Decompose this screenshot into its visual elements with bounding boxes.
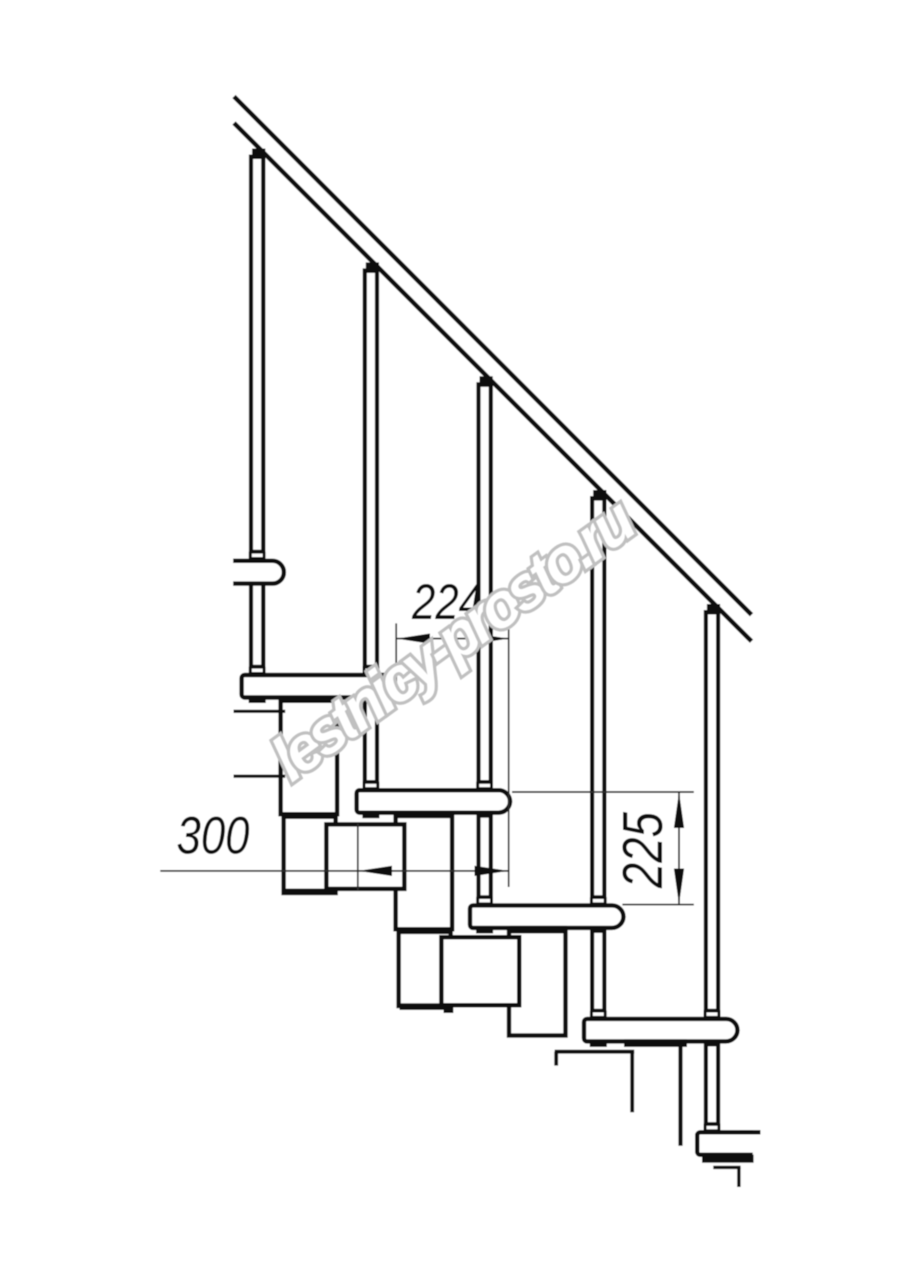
svg-text:225: 225 (611, 812, 675, 889)
svg-text:300: 300 (177, 807, 250, 866)
